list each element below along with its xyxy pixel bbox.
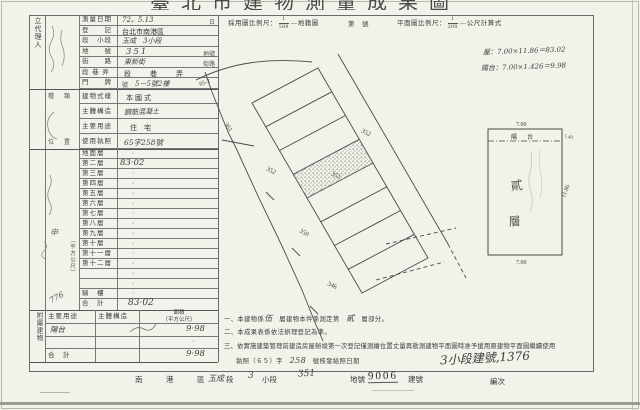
plot-lot-numbers: 85-2 361 352 351 352 350 346 <box>199 78 372 291</box>
bleedthrough-scribble <box>529 152 533 212</box>
plot-division-line <box>335 211 401 246</box>
plot-division-line <box>280 116 346 151</box>
lot-number: 350 <box>298 228 310 239</box>
plot-division-line <box>266 92 332 127</box>
handwritten-bracket <box>48 112 57 139</box>
illegible-handwriting <box>42 26 156 332</box>
dim-balcony-depth: 1.40 <box>564 134 574 141</box>
lot-number: 361 <box>222 121 233 133</box>
floor-character-1: 貳 <box>510 177 523 193</box>
plot-division-line <box>321 187 387 222</box>
scanned-survey-form: { "title": "臺北市建物測量成果圖", "colors": {"pap… <box>0 0 640 410</box>
plot-dashed-extension <box>376 262 444 280</box>
cadastral-plot <box>196 54 466 341</box>
balcony-label: 陽 台 <box>511 133 535 141</box>
lot-number: 346 <box>326 280 338 291</box>
dim-bottom: 7.00 <box>516 260 527 266</box>
plot-division-line <box>348 234 414 269</box>
plot-dashed-extension <box>386 228 456 244</box>
plot-tick <box>292 248 300 256</box>
handwriting-squiggle <box>42 242 47 259</box>
lot-number: 352 <box>265 166 277 177</box>
plot-right-road-dashed <box>448 244 466 278</box>
subject-parcel-shading <box>293 139 373 198</box>
plot-boundary-jog <box>222 140 254 146</box>
handwriting-squiggle <box>48 175 52 215</box>
survey-diagrams: 85-2 361 352 351 352 350 346 7.00 陽 台 1.… <box>0 0 640 410</box>
dim-top: 7.00 <box>516 122 527 128</box>
lot-number: 85-2 <box>199 78 211 87</box>
plot-tick <box>266 192 274 200</box>
plot-left-road-line <box>205 72 323 341</box>
handwriting-squiggle <box>61 30 65 66</box>
dim-right: 11.86 <box>561 184 571 199</box>
floor-character-2: 層 <box>508 214 521 229</box>
floorplan-outline <box>488 129 562 255</box>
annex-structure-scribble <box>130 324 156 332</box>
plot-top-boundary <box>196 61 312 80</box>
lot-number: 352 <box>360 128 372 139</box>
floorplan-diagram: 7.00 陽 台 1.40 11.86 7.00 貳 層 <box>488 122 574 266</box>
bleedthrough-scribble <box>539 150 542 198</box>
handwriting-squiggle <box>49 26 54 72</box>
